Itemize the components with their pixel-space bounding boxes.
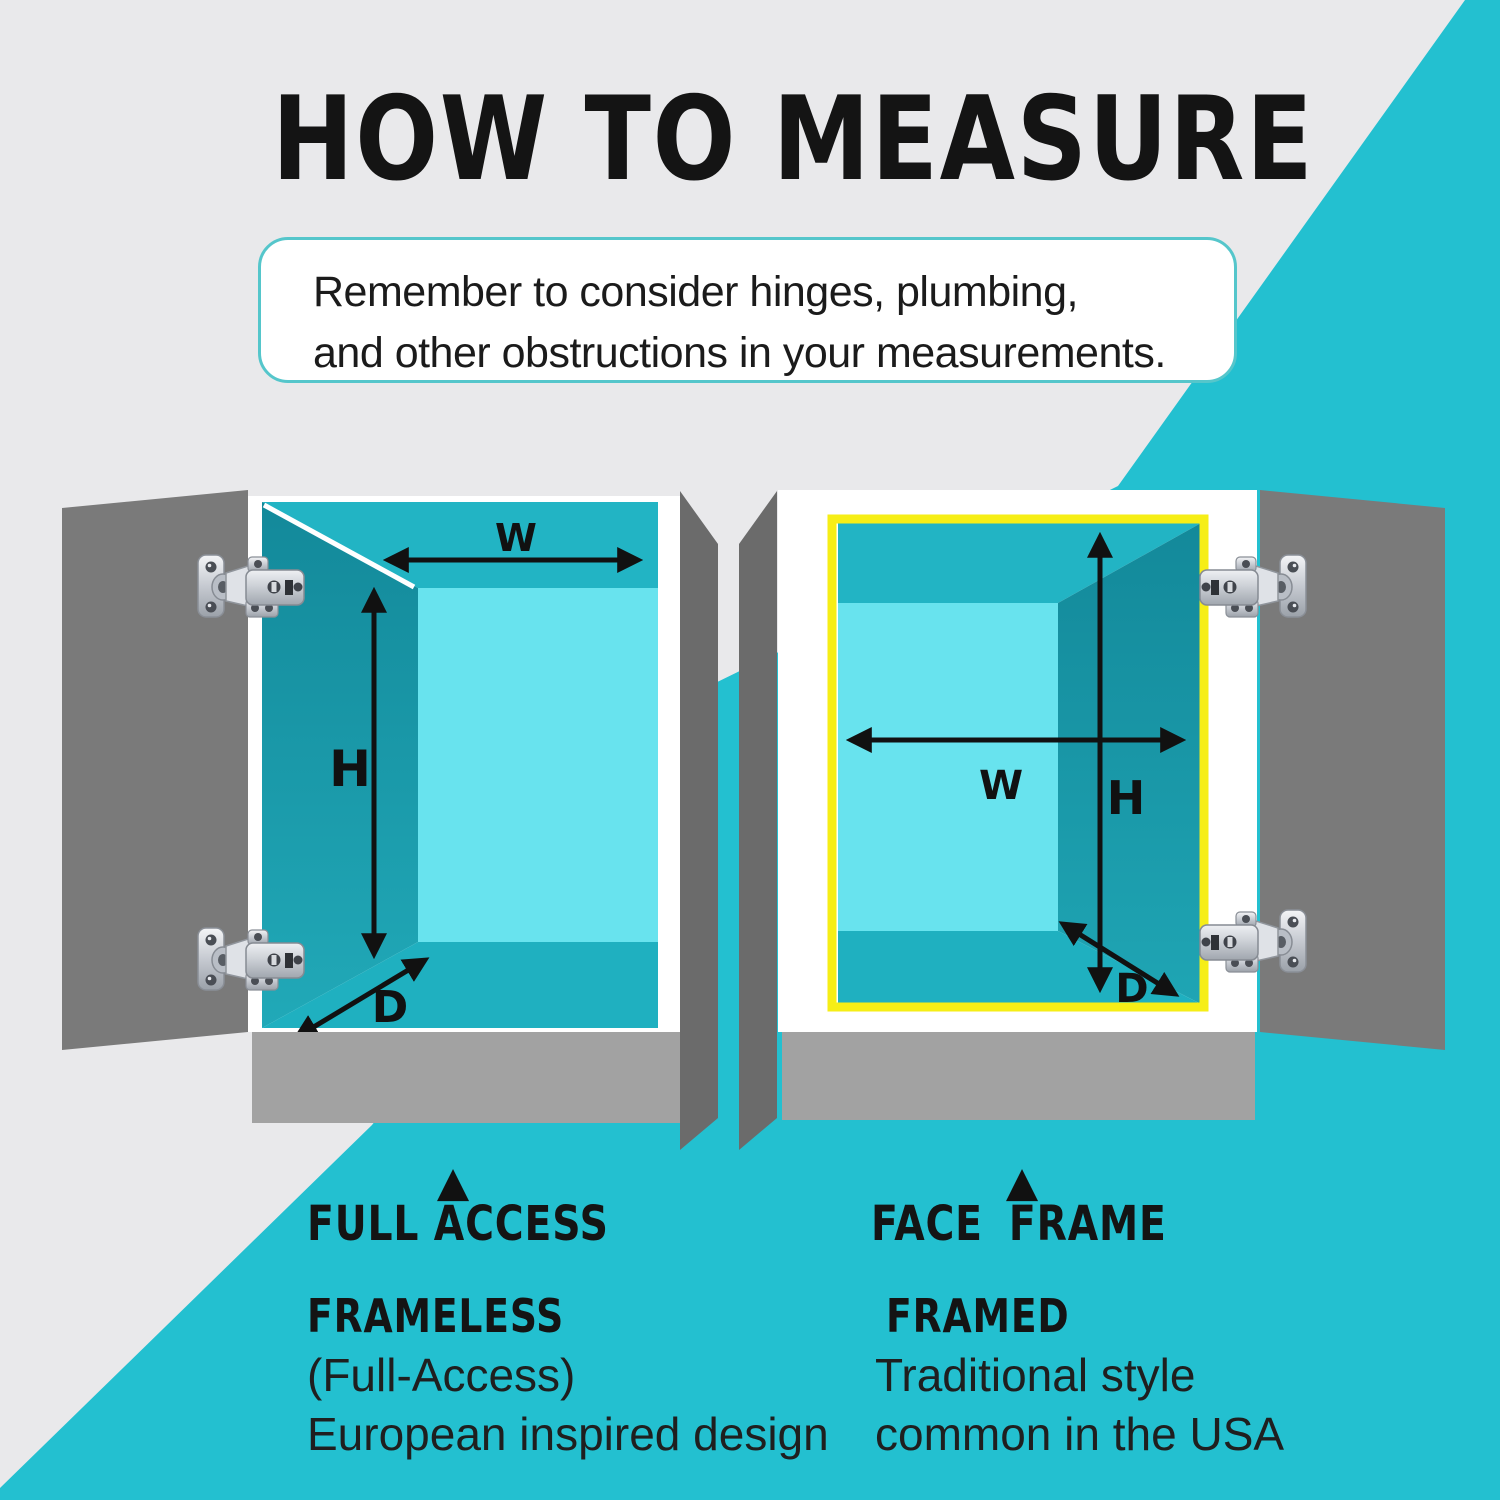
depth-label-right: D — [1115, 966, 1148, 1012]
side-panel-right-cabinet — [739, 491, 777, 1150]
measure-diagram: W H D W H D ▲ ▲ — [0, 0, 1500, 1500]
interior-back-wall-right — [838, 603, 1058, 931]
style-name-framed: FRAMED — [886, 1293, 1070, 1339]
page-title: HOW TO MEASURE — [272, 82, 1314, 198]
desc-framed-line1: Traditional style — [875, 1350, 1195, 1401]
heading-face-frame: FACE FRAME — [871, 1200, 1167, 1248]
cabinet-base-left — [252, 1032, 680, 1123]
desc-frameless-line1: (Full-Access) — [307, 1350, 575, 1401]
desc-frameless-line2: European inspired design — [307, 1409, 829, 1460]
style-name-frameless: FRAMELESS — [307, 1293, 564, 1339]
width-label-right: W — [979, 763, 1023, 809]
cabinet-base-right — [782, 1032, 1255, 1120]
height-label-right: H — [1107, 771, 1146, 825]
infographic: W H D W H D ▲ ▲ — [0, 0, 1500, 1500]
side-panel-left-cabinet — [680, 491, 718, 1150]
note-line-1: Remember to consider hinges, plumbing, — [313, 262, 1166, 323]
height-label-left: H — [329, 740, 371, 798]
depth-label-left: D — [372, 982, 409, 1033]
note-line-2: and other obstructions in your measureme… — [313, 323, 1166, 384]
measurement-note-text: Remember to consider hinges, plumbing, a… — [313, 262, 1166, 384]
desc-framed-line2: common in the USA — [875, 1409, 1284, 1460]
measurement-note-box: Remember to consider hinges, plumbing, a… — [258, 237, 1237, 383]
width-label-left: W — [495, 516, 537, 560]
interior-back-wall-left — [418, 588, 658, 942]
heading-full-access: FULL ACCESS — [307, 1200, 609, 1248]
